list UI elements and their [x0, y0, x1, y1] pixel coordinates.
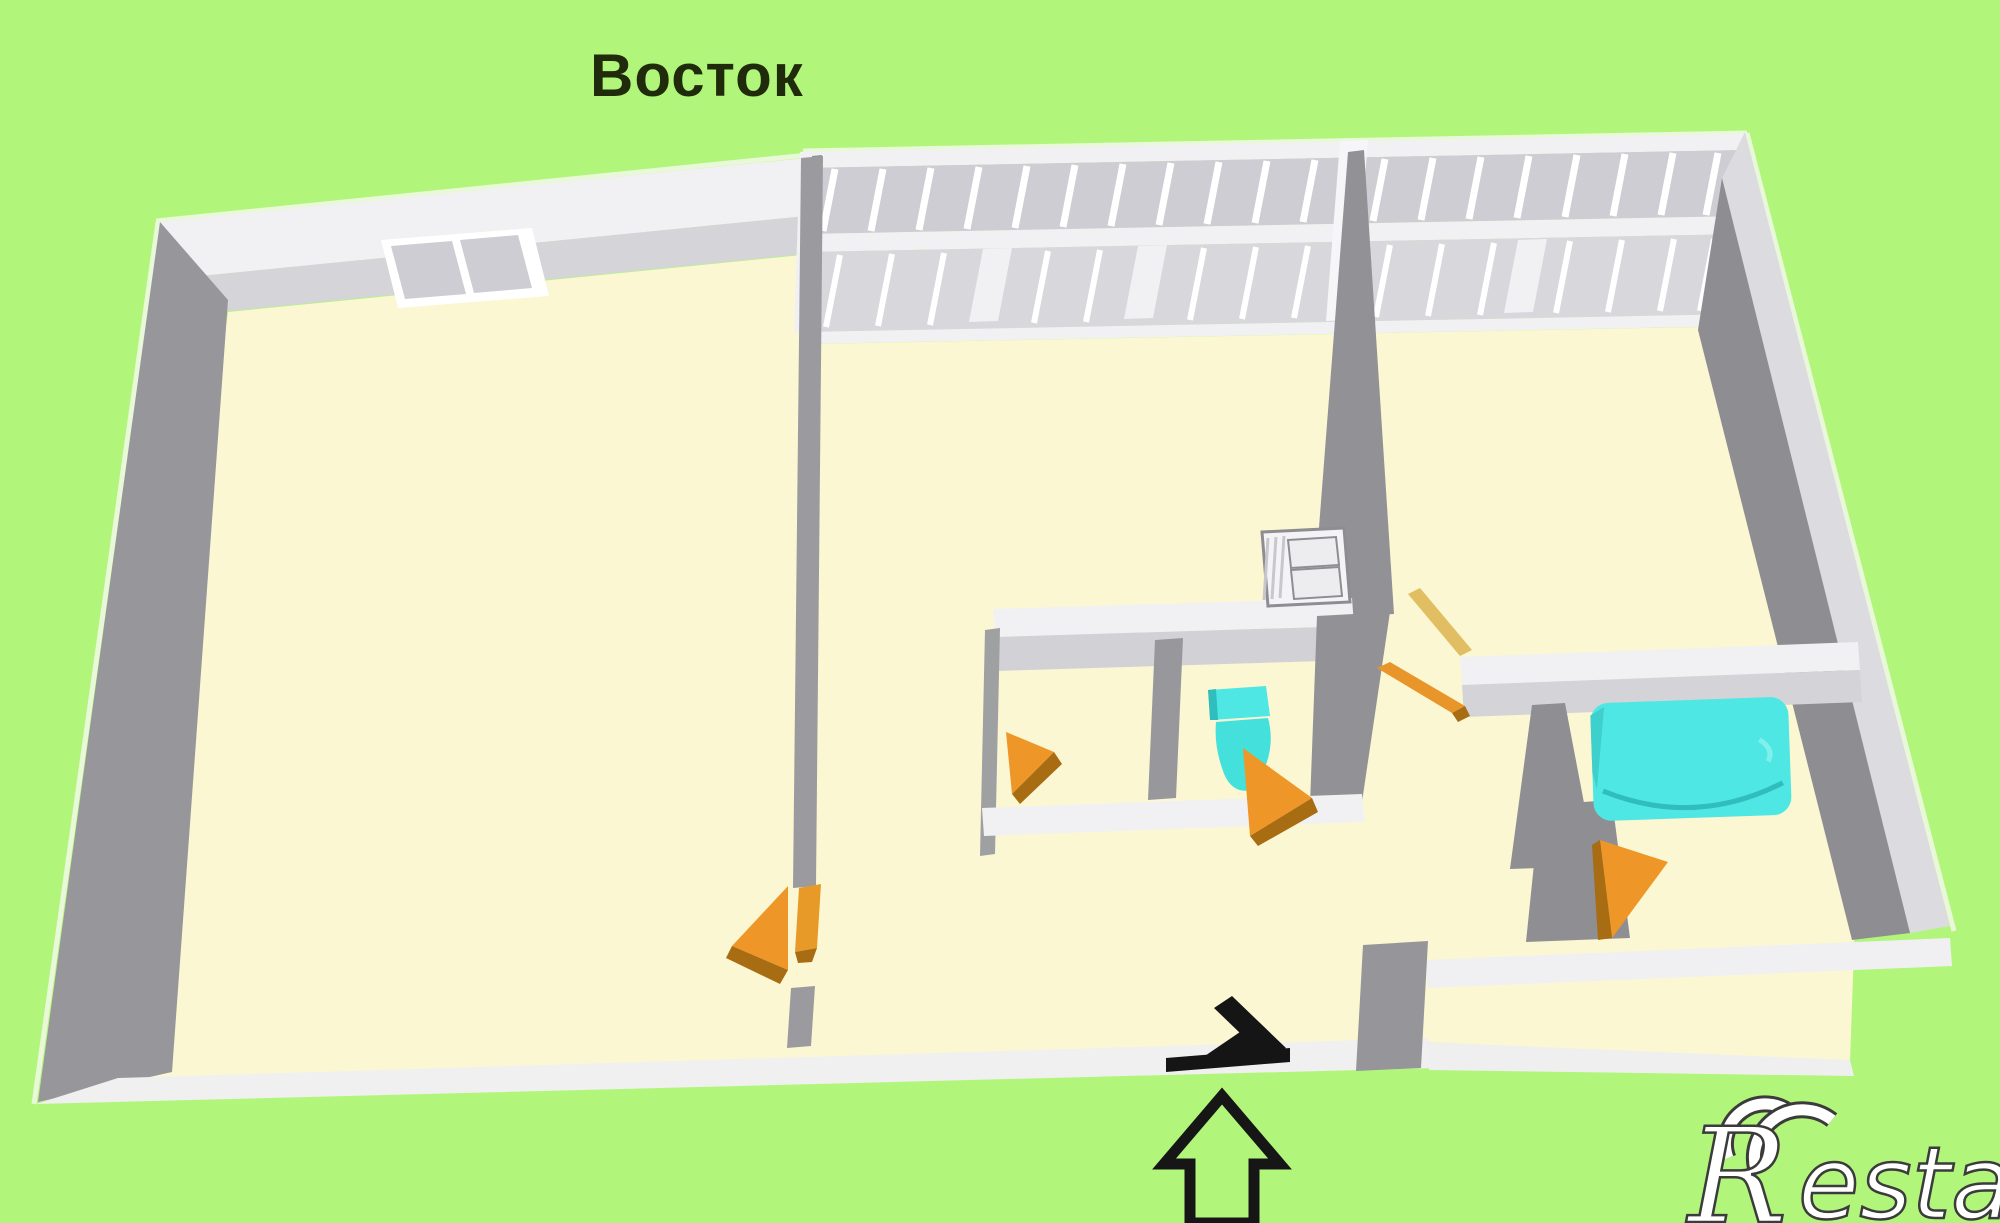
window-icon	[381, 228, 549, 308]
bathtub-icon	[1590, 697, 1792, 822]
floor-plan-canvas: Восток R estate	[0, 0, 2000, 1223]
logo-text-estate: estate	[1798, 1125, 2000, 1223]
compass-label-text: Восток	[590, 42, 804, 109]
logo-letter-r: R	[1686, 1100, 1787, 1223]
cabinet-icon	[1262, 528, 1350, 606]
watermark-logo: R estate	[1686, 1100, 2000, 1223]
up-arrow-icon	[1164, 1096, 1280, 1223]
compass-label: Восток	[590, 42, 804, 109]
window-band-wall	[794, 134, 1745, 344]
